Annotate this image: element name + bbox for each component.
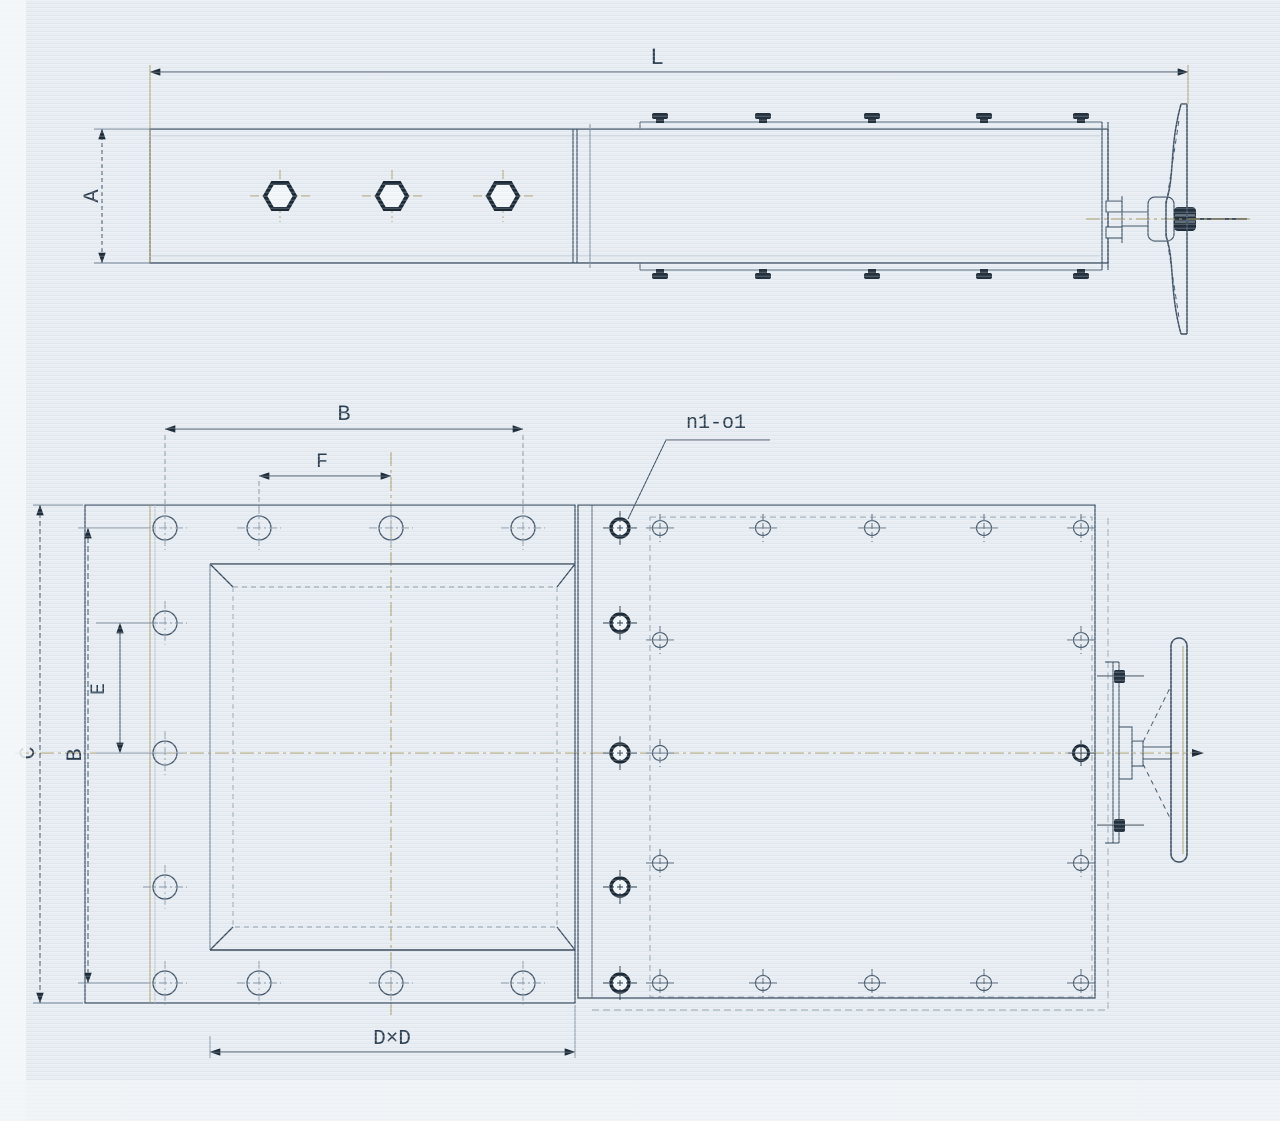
- dim-label-B-vertical: B: [63, 748, 88, 761]
- dim-label-C: C: [16, 746, 41, 759]
- dimension-B-vertical: B: [63, 528, 148, 983]
- dimension-L: L: [150, 45, 1188, 129]
- dim-label-L: L: [650, 45, 664, 71]
- n1-bolt-holes: [603, 511, 637, 1000]
- flange-bolt-holes: [143, 506, 545, 1005]
- hex-bolt-icon: [250, 170, 310, 222]
- technical-drawing: L A: [0, 0, 1280, 1121]
- top-view: L A: [80, 45, 1252, 334]
- dim-label-A: A: [80, 189, 105, 203]
- hex-bolt-icon: [362, 170, 422, 222]
- dimension-F: F: [259, 451, 391, 512]
- housing-plate: [578, 505, 1108, 1010]
- handwheel-front: [1097, 638, 1187, 862]
- centerline-arrow-icon: [1192, 749, 1204, 757]
- dimension-A: A: [80, 129, 152, 263]
- dim-label-F: F: [316, 451, 328, 474]
- dimension-E: E: [88, 623, 158, 753]
- hex-bolt-icon: [473, 170, 533, 222]
- dim-label-DxD: D×D: [373, 1028, 411, 1051]
- gate-opening: [210, 564, 575, 950]
- dim-label-B-horizontal: B: [337, 402, 350, 427]
- callout-n1-o1: n1-o1: [628, 412, 770, 519]
- dim-label-E: E: [88, 683, 111, 695]
- cover-screws: [646, 514, 1095, 997]
- dim-label-n1-o1: n1-o1: [686, 412, 746, 435]
- gate-bolts-top: [250, 170, 533, 222]
- flange-plate: [85, 505, 575, 1003]
- drawing-canvas: L A: [0, 0, 1280, 1121]
- handwheel-top: [1086, 104, 1252, 334]
- cover-clips-top: [652, 113, 1089, 279]
- front-view: B F n1-o1 C: [15, 402, 1204, 1058]
- dimension-B-horizontal: B: [165, 402, 523, 512]
- dimension-DxD: D×D: [210, 1005, 575, 1058]
